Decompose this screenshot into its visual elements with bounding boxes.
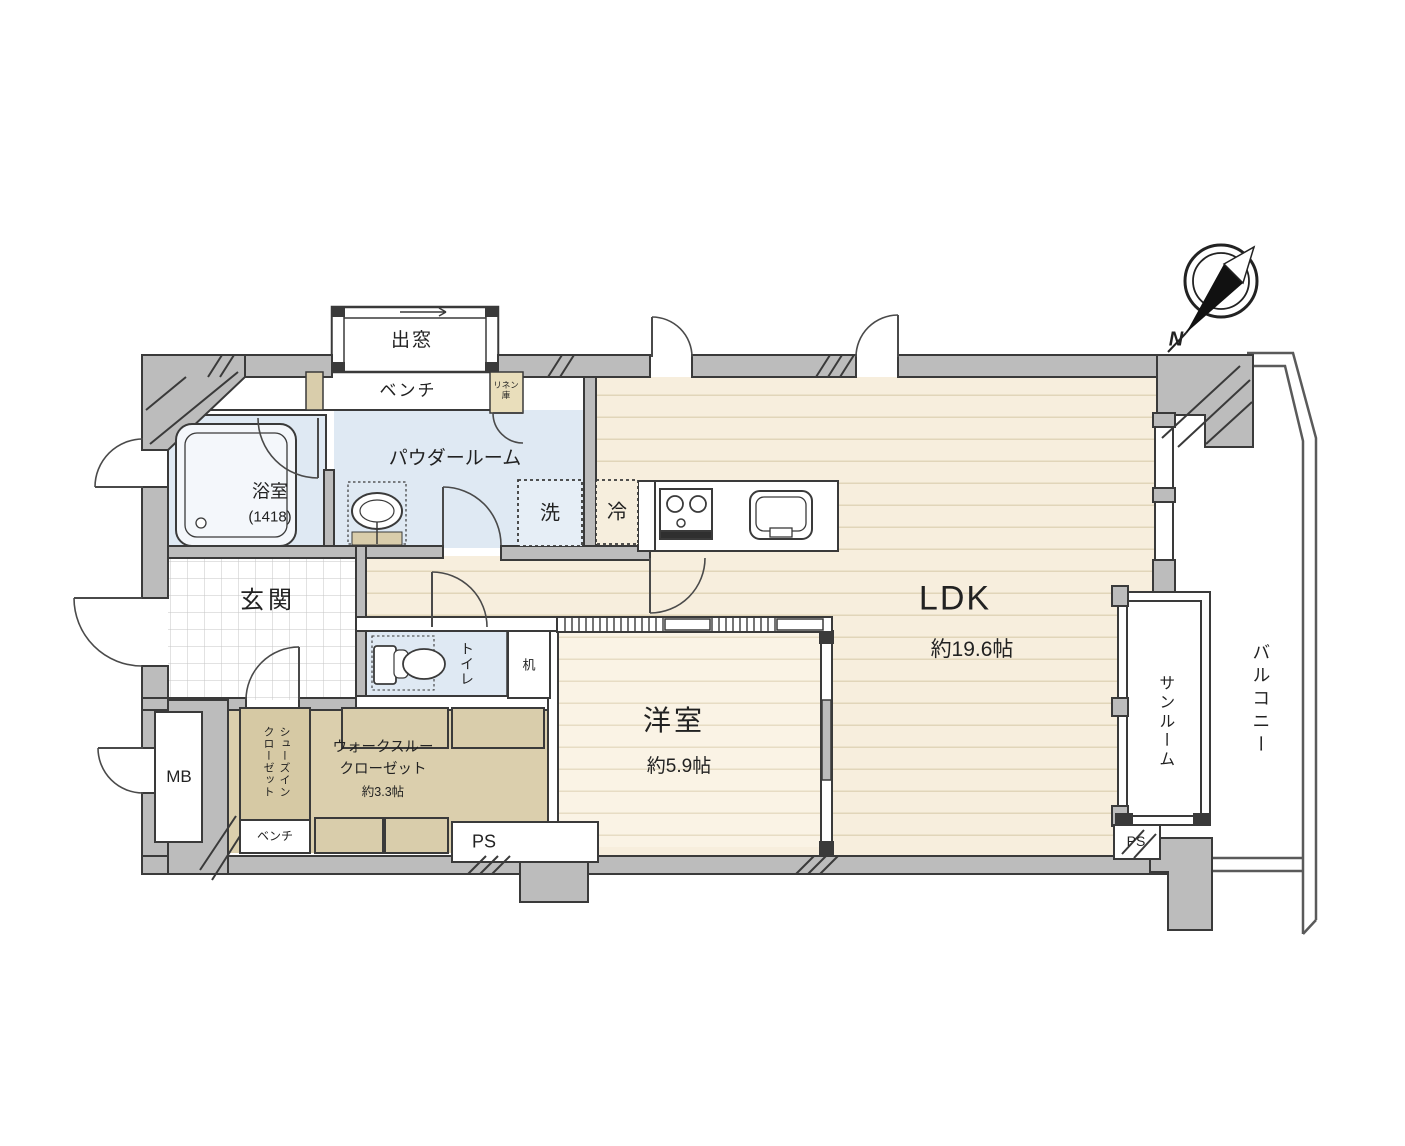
genkan-floor — [168, 558, 358, 700]
fridge-label: 冷 — [607, 502, 627, 525]
toilet-label: トイレ — [459, 642, 475, 687]
accordion-partition — [557, 617, 832, 632]
hallway-floor — [366, 556, 596, 618]
bay-window-label: 出窓 — [391, 330, 433, 352]
floor-plan: 出窓 ベンチ リネン庫 パウダールーム 浴室 (1418) 洗 冷 LDK 約1… — [0, 0, 1405, 1146]
bathroom-size: (1418) — [248, 508, 291, 525]
ps-center-label: PS — [472, 832, 496, 853]
mb-label: MB — [166, 767, 192, 787]
wtc-cabinet-2 — [452, 708, 544, 748]
linen-closet-label: リネン庫 — [493, 381, 519, 401]
bench-top-label: ベンチ — [380, 381, 437, 401]
sink-icon — [750, 491, 812, 539]
wtc-label-2: クローゼット — [340, 762, 427, 779]
ldk-size: 約19.6帖 — [931, 638, 1014, 662]
wtc-label-1: ウォークスルー — [332, 740, 433, 757]
shoes-in-closet-label: シューズイン クローゼット — [259, 726, 291, 798]
sunroom-label: サンルーム — [1155, 675, 1173, 770]
genkan-label: 玄関 — [240, 587, 296, 615]
western-room-floor — [558, 632, 822, 847]
western-room-size: 約5.9帖 — [647, 756, 711, 778]
compass-north-label: N — [1169, 329, 1183, 352]
western-room-label: 洋室 — [643, 705, 705, 737]
ps-right-label: PS — [1127, 833, 1146, 849]
bench-bottom-label: ベンチ — [257, 830, 293, 844]
washer-label: 洗 — [540, 503, 560, 526]
ldk-label: LDK — [919, 579, 991, 618]
balcony-label: バルコニー — [1250, 643, 1271, 758]
desk-label: 机 — [522, 659, 535, 674]
wtc-cabinet-4 — [385, 818, 448, 853]
floor-plan-svg — [0, 0, 1405, 1146]
powder-room-label: パウダールーム — [389, 448, 521, 470]
kitchen-counter — [638, 481, 838, 551]
bathroom-label: 浴室 — [252, 482, 288, 503]
wtc-size: 約3.3帖 — [362, 785, 404, 799]
wtc-cabinet-3 — [315, 818, 383, 853]
right-window-wall — [1153, 413, 1175, 603]
stove-icon — [660, 489, 712, 539]
